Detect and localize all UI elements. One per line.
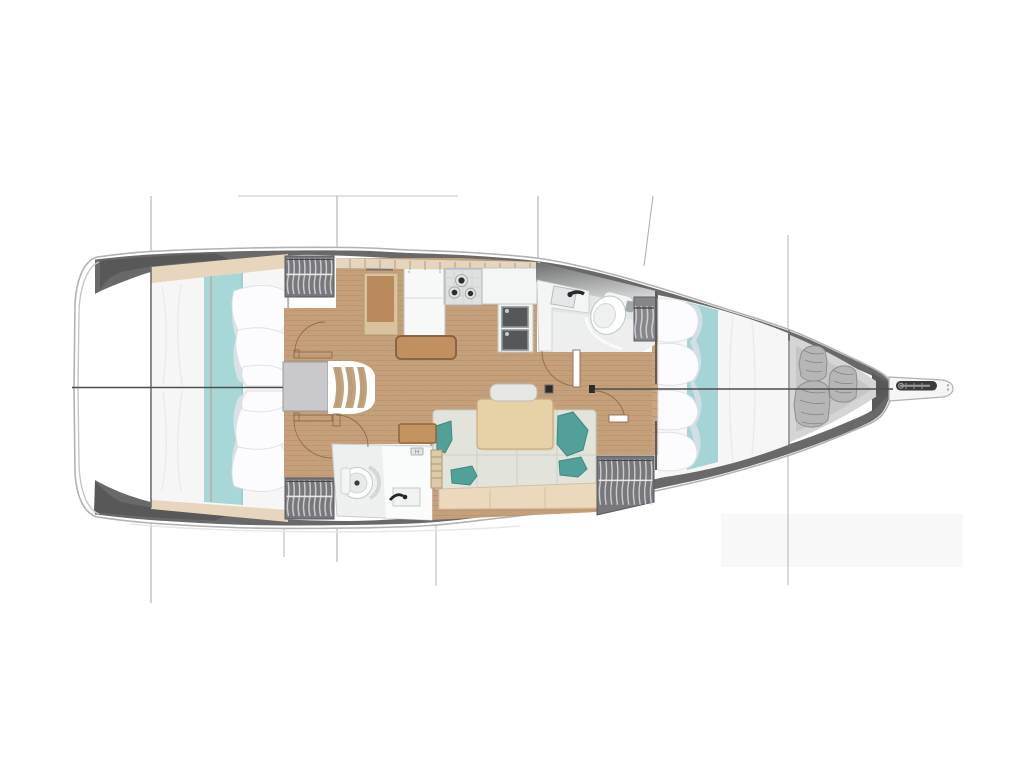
svg-text:H: H xyxy=(415,450,419,456)
